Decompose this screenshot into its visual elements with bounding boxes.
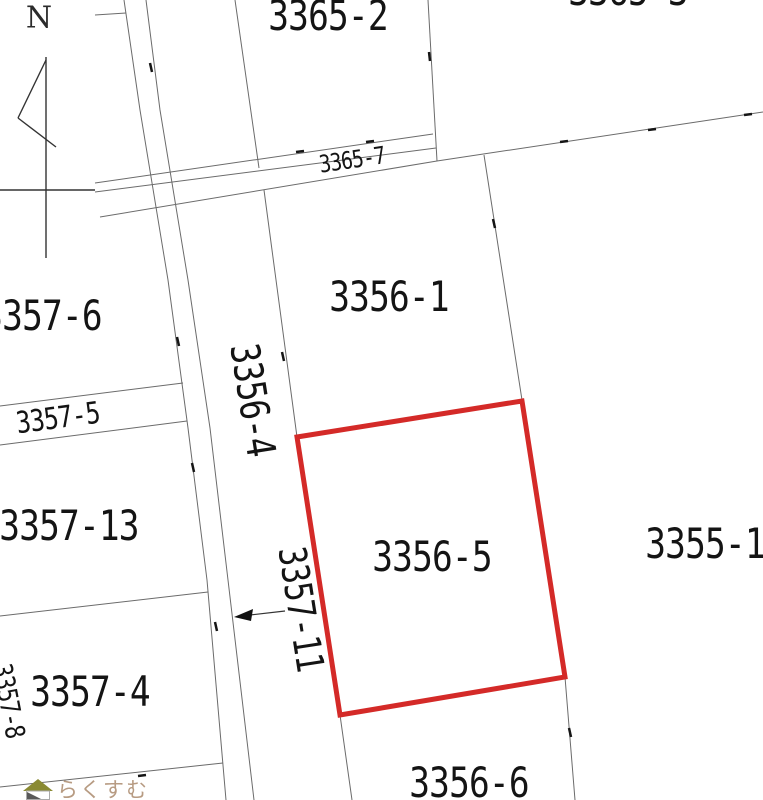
diagonal-road-lower-line	[100, 112, 763, 217]
boundary-line	[235, 0, 259, 168]
tick-mark	[138, 775, 146, 776]
tick-mark	[192, 463, 194, 472]
boundary-line	[95, 13, 126, 15]
parcel-label-3357-6: 3357-6	[0, 295, 102, 337]
arrow-head-icon	[234, 609, 253, 621]
north-label: N	[26, 1, 52, 36]
boundary-line	[0, 592, 208, 616]
tick-mark	[215, 622, 217, 631]
parcel-label-3365-2: 3365-2	[268, 0, 387, 37]
parcel-label-3357-4: 3357-4	[30, 671, 149, 713]
north-arrow-blade2	[18, 118, 56, 147]
tick-mark	[150, 63, 152, 72]
label-pointer-arrow	[234, 609, 285, 621]
north-arrow-blade	[18, 60, 46, 118]
boundary-line	[428, 0, 437, 161]
parcel-label-3365-3: 3365-3	[568, 0, 687, 12]
north-arrow	[0, 57, 95, 258]
parcel-label-3357-13: 3357-13	[0, 505, 139, 547]
cadastral-map: N 3365-2 3365-3 3365-7 3356-1 3356-4 335…	[0, 0, 763, 800]
tick-mark	[429, 52, 430, 61]
tick-mark	[296, 151, 304, 152]
house-roof-icon	[23, 779, 53, 791]
parcel-label-3356-6: 3356-6	[409, 762, 528, 800]
parcel-label-3356-1: 3356-1	[329, 276, 448, 318]
tick-mark	[177, 337, 179, 346]
parcel-label-3355-1: 3355-1	[645, 523, 763, 565]
watermark-text: らくすむ	[57, 780, 149, 800]
tick-mark	[493, 219, 495, 228]
tick-mark	[282, 352, 284, 361]
boundary-line	[484, 155, 575, 800]
tick-mark	[648, 129, 656, 130]
tick-mark	[744, 114, 752, 115]
parcel-label-3356-5: 3356-5	[372, 536, 491, 578]
tick-mark	[560, 141, 568, 142]
